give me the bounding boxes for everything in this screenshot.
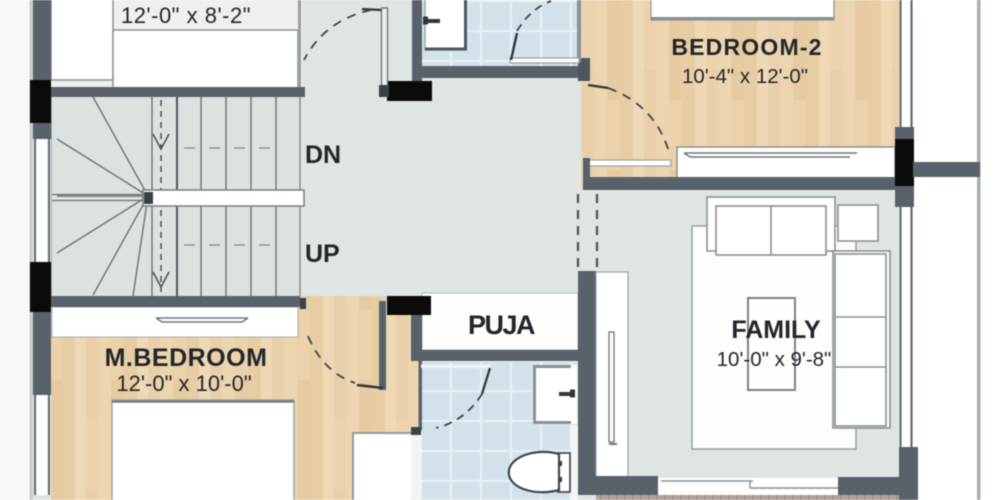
svg-text:12'-0" x 8'-2": 12'-0" x 8'-2"	[121, 3, 251, 28]
svg-text:DN: DN	[305, 141, 341, 169]
svg-text:UP: UP	[305, 240, 340, 268]
svg-text:FAMILY: FAMILY	[731, 316, 821, 344]
svg-text:PUJA: PUJA	[468, 310, 535, 340]
svg-text:10'-4" x 12'-0": 10'-4" x 12'-0"	[682, 65, 808, 88]
svg-text:BEDROOM-2: BEDROOM-2	[671, 34, 822, 60]
svg-text:M.BEDROOM: M.BEDROOM	[105, 344, 268, 372]
svg-text:12'-0" x 10'-0": 12'-0" x 10'-0"	[116, 371, 251, 396]
svg-text:10'-0" x 9'-8": 10'-0" x 9'-8"	[717, 348, 832, 371]
